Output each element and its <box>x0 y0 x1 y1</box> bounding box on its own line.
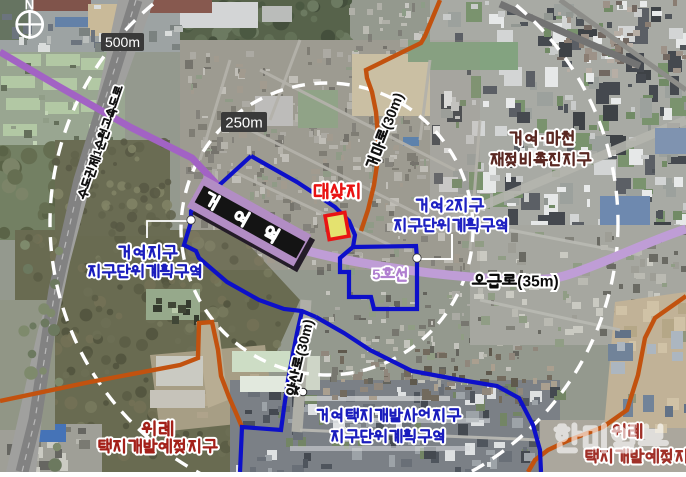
svg-text:5: 5 <box>372 267 380 284</box>
svg-text:N: N <box>25 0 35 13</box>
svg-text:250m: 250m <box>225 115 263 132</box>
svg-text:2: 2 <box>446 197 455 214</box>
svg-text:(35m): (35m) <box>517 273 558 290</box>
svg-text:500m: 500m <box>105 34 140 50</box>
svg-text:·: · <box>540 130 545 147</box>
